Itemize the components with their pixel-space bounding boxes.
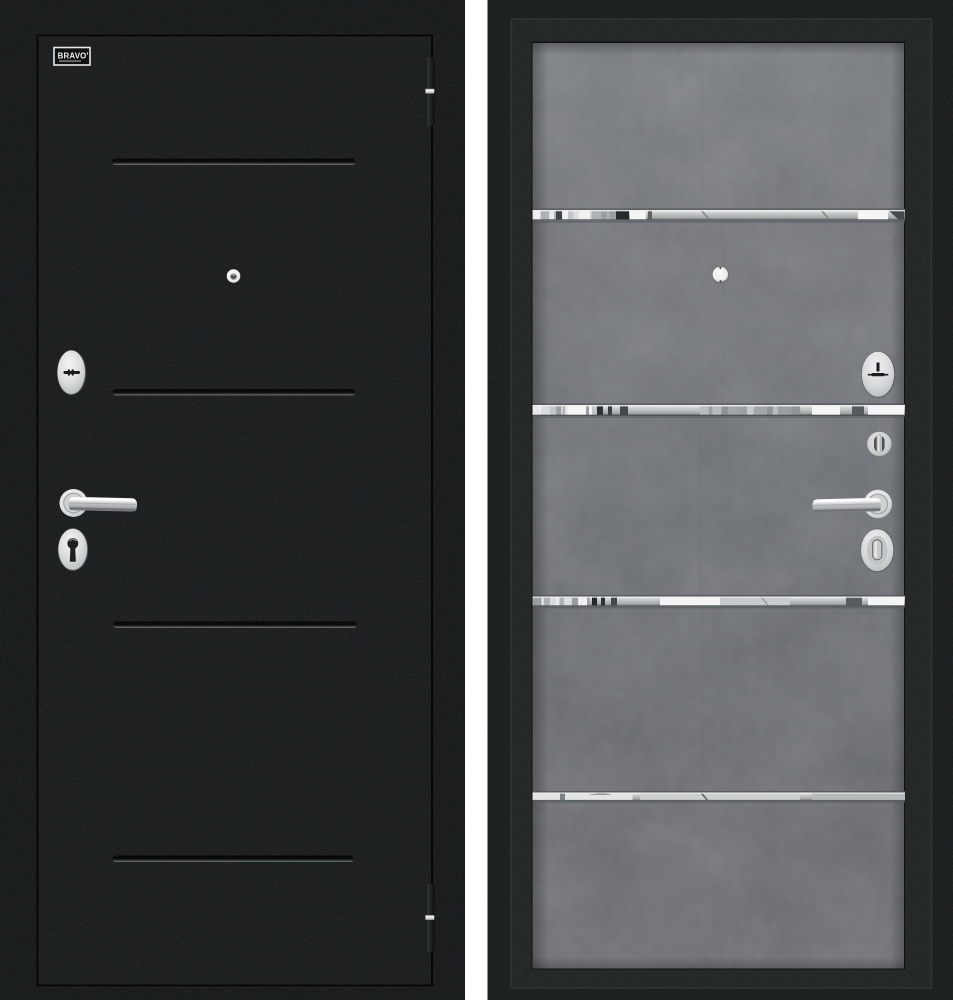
svg-text:BRAVO': BRAVO'	[58, 51, 89, 60]
